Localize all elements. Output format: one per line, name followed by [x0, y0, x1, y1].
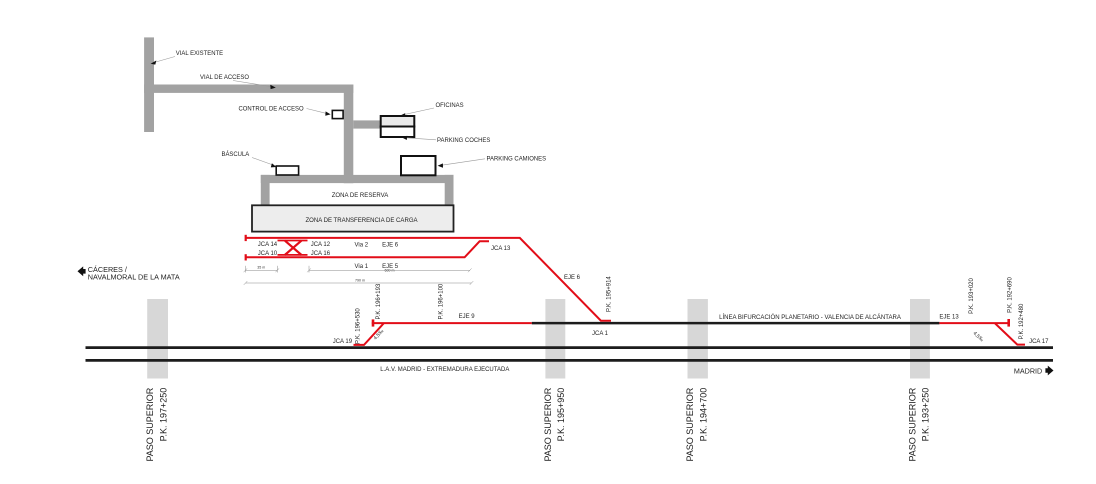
svg-text:P.K. 196+193: P.K. 196+193: [376, 283, 382, 319]
svg-text:JCA 14: JCA 14: [258, 242, 278, 248]
svg-text:PARKING COCHES: PARKING COCHES: [437, 138, 490, 144]
svg-text:EJE 6: EJE 6: [382, 242, 399, 248]
svg-text:P.K. 193+250: P.K. 193+250: [921, 388, 931, 442]
svg-text:EJE 6: EJE 6: [564, 275, 581, 281]
svg-text:NAVALMORAL DE LA MATA: NAVALMORAL DE LA MATA: [88, 273, 180, 282]
svg-text:JCA 17: JCA 17: [1029, 339, 1049, 345]
svg-text:P.K. 197+250: P.K. 197+250: [158, 388, 168, 442]
svg-text:L.A.V. MADRID - EXTREMADURA EJ: L.A.V. MADRID - EXTREMADURA EJECUTADA: [380, 367, 509, 373]
svg-text:JCA 12: JCA 12: [311, 242, 331, 248]
svg-text:MADRID: MADRID: [1014, 367, 1042, 376]
svg-text:Via 2: Via 2: [355, 242, 369, 248]
svg-text:OFICINAS: OFICINAS: [436, 103, 464, 109]
svg-text:JCA 19: JCA 19: [333, 339, 353, 345]
svg-text:VIAL DE ACCESO: VIAL DE ACCESO: [200, 75, 249, 81]
svg-text:P.K. 192+480: P.K. 192+480: [1019, 303, 1025, 339]
svg-text:35 m: 35 m: [257, 266, 265, 270]
svg-text:PASO SUPERIOR: PASO SUPERIOR: [685, 387, 695, 461]
svg-text:LÍNEA BIFURCACIÓN PLANETARIO -: LÍNEA BIFURCACIÓN PLANETARIO - VALENCIA …: [719, 314, 902, 321]
svg-text:JCA 16: JCA 16: [311, 251, 331, 257]
svg-text:Via 1: Via 1: [355, 264, 369, 270]
svg-text:ZONA DE RESERVA: ZONA DE RESERVA: [332, 193, 390, 199]
svg-text:VIAL EXISTENTE: VIAL EXISTENTE: [176, 51, 223, 57]
svg-text:P.K. 196+530: P.K. 196+530: [355, 308, 361, 344]
svg-text:P.K. 195+950: P.K. 195+950: [556, 388, 566, 442]
svg-text:PASO SUPERIOR: PASO SUPERIOR: [543, 387, 553, 461]
svg-text:P.K. 195+914: P.K. 195+914: [607, 276, 613, 312]
svg-text:EJE 13: EJE 13: [939, 315, 959, 321]
svg-text:JCA 1: JCA 1: [592, 331, 609, 337]
svg-text:BÁSCULA: BÁSCULA: [222, 151, 250, 158]
svg-text:790 m: 790 m: [355, 279, 365, 283]
svg-text:JCA 10: JCA 10: [258, 251, 278, 257]
svg-text:CONTROL DE ACCESO: CONTROL DE ACCESO: [239, 107, 304, 113]
svg-text:P.K. 194+700: P.K. 194+700: [698, 388, 708, 442]
svg-text:ZONA DE TRANSFERENCIA DE CARGA: ZONA DE TRANSFERENCIA DE CARGA: [305, 218, 418, 224]
svg-text:PASO SUPERIOR: PASO SUPERIOR: [145, 387, 155, 461]
svg-text:PASO SUPERIOR: PASO SUPERIOR: [907, 387, 917, 461]
svg-text:EJE 9: EJE 9: [459, 314, 476, 320]
svg-text:PARKING CAMIONES: PARKING CAMIONES: [487, 157, 547, 163]
svg-text:JCA 13: JCA 13: [491, 246, 511, 252]
svg-text:P.K. 193+020: P.K. 193+020: [969, 277, 975, 313]
svg-text:P.K. 192+690: P.K. 192+690: [1007, 276, 1013, 312]
svg-text:P.K. 196+100: P.K. 196+100: [439, 283, 445, 319]
